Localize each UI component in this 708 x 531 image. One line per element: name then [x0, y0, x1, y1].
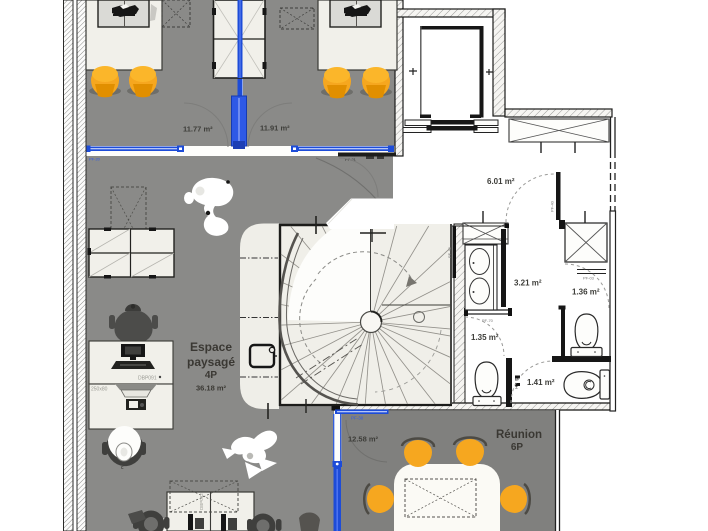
svg-text:±: ± [515, 385, 518, 391]
svg-text:PF-43: PF-43 [447, 246, 452, 258]
svg-text:PF-20: PF-20 [89, 157, 101, 162]
svg-text:Espace: Espace [190, 340, 232, 354]
svg-text:36.18 m²: 36.18 m² [196, 384, 227, 393]
svg-text:11.77 m²: 11.77 m² [183, 125, 213, 134]
svg-text:1.41 m²: 1.41 m² [527, 378, 555, 387]
svg-text:4P: 4P [205, 370, 218, 381]
svg-text:Réunion: Réunion [496, 429, 542, 441]
svg-text:6P: 6P [511, 442, 524, 453]
svg-text:PF-40: PF-40 [550, 200, 555, 212]
svg-text:1.35 m²: 1.35 m² [471, 333, 499, 342]
svg-text:6.01 m²: 6.01 m² [487, 177, 515, 186]
svg-text:12.58 m²: 12.58 m² [348, 435, 379, 444]
svg-text:PF-03: PF-03 [583, 276, 595, 281]
svg-text:DBP091: DBP091 [138, 376, 157, 382]
svg-text:250x80: 250x80 [91, 387, 108, 393]
svg-text:3.21 m²: 3.21 m² [514, 279, 542, 288]
svg-text:e: e [515, 377, 518, 383]
svg-text:1.36 m²: 1.36 m² [572, 288, 600, 297]
svg-text:PF-30: PF-30 [351, 416, 364, 421]
svg-text:paysagé: paysagé [187, 355, 235, 369]
svg-text:DBP092: DBP092 [199, 493, 204, 510]
svg-text:11.91 m²: 11.91 m² [260, 124, 290, 133]
